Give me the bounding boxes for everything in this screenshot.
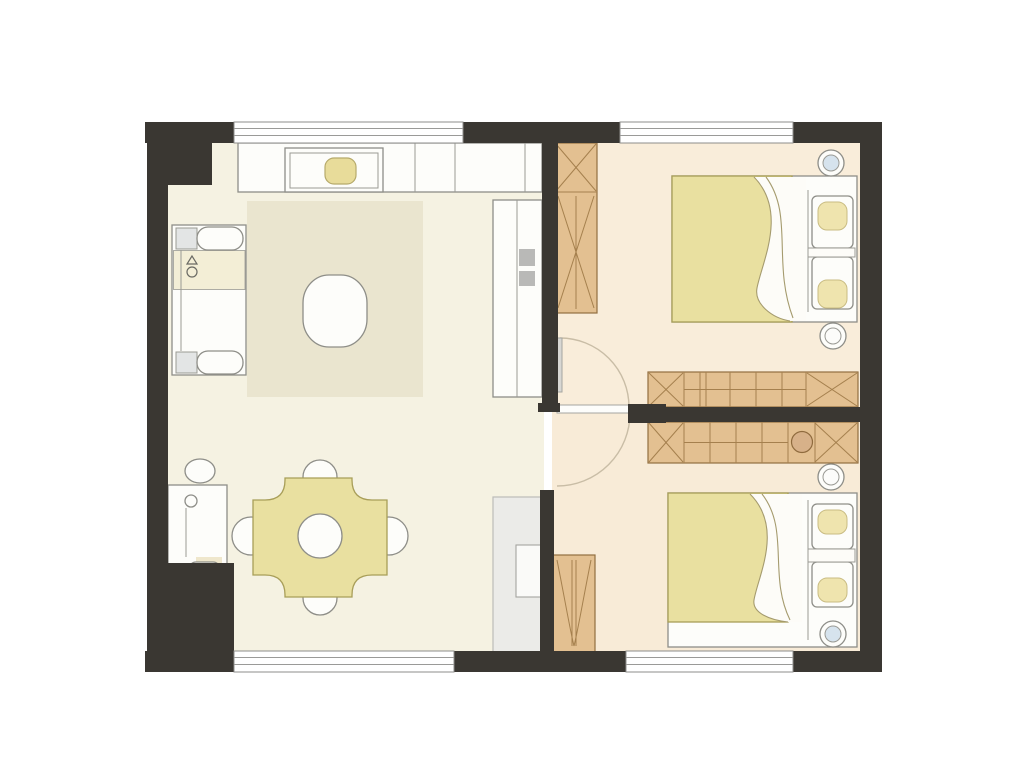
bedroom-top-tall-wardrobe: [555, 143, 597, 313]
sofa-cushion-bottom: [176, 352, 197, 373]
wall-middle: [630, 407, 860, 422]
pillow-bar: [808, 549, 855, 562]
sofa-cushion-top: [176, 228, 197, 249]
pillow-1-inner: [818, 202, 847, 230]
pillow-2-inner: [818, 578, 847, 602]
floor-plan: [0, 0, 1024, 768]
bedroom-top-long-wardrobe: [648, 372, 858, 407]
pillow-1-inner: [818, 510, 847, 534]
wall-divider-upper: [542, 143, 558, 405]
wall-corner-top-left: [147, 122, 212, 185]
dining-table-center: [298, 514, 342, 558]
pillow-bar: [808, 248, 855, 257]
sofa-armrest-bottom: [197, 351, 243, 374]
door-bottom-leaf: [557, 405, 630, 413]
cabinet-handle: [519, 249, 535, 266]
tv-console-body: [238, 143, 542, 192]
side-plant: [185, 459, 215, 483]
cabinet-handle: [519, 271, 535, 286]
bedroom-bottom-small-wardrobe: [553, 555, 595, 652]
pillow-2-inner: [818, 280, 847, 308]
window-bottom-living: [234, 651, 454, 672]
counter-door: [516, 545, 542, 597]
wall-right: [860, 122, 882, 672]
wall-top-middle: [463, 122, 620, 143]
wall-corner-bottom-left: [147, 563, 234, 672]
media-item: [325, 158, 356, 184]
window-top-living: [234, 122, 463, 143]
round-mirror: [792, 432, 813, 453]
bedroom-bottom-long-wardrobe: [648, 422, 858, 463]
bedside-lamp-top-shade: [823, 469, 839, 485]
wall-bottom-middle: [454, 651, 626, 672]
desk-cup: [185, 495, 197, 507]
wall-divider-foot: [538, 403, 560, 412]
bedside-lamp-top-shade: [823, 155, 839, 171]
counter-cabinet: [493, 497, 542, 653]
sofa-armrest-top: [197, 227, 243, 250]
floor-plan-canvas: [0, 0, 1024, 768]
bedside-lamp-bottom-shade: [825, 626, 841, 642]
bedside-lamp-bottom-shade: [825, 328, 841, 344]
sofa: [172, 225, 246, 375]
sofa-side-table: [174, 251, 246, 290]
window-top-bedroom: [620, 122, 793, 143]
bed-top: [672, 150, 857, 349]
storage-cabinet: [493, 200, 542, 397]
wall-divider-lower: [540, 490, 554, 651]
window-bottom-bedroom: [626, 651, 793, 672]
coffee-table: [303, 275, 367, 347]
tv-console: [238, 143, 542, 192]
